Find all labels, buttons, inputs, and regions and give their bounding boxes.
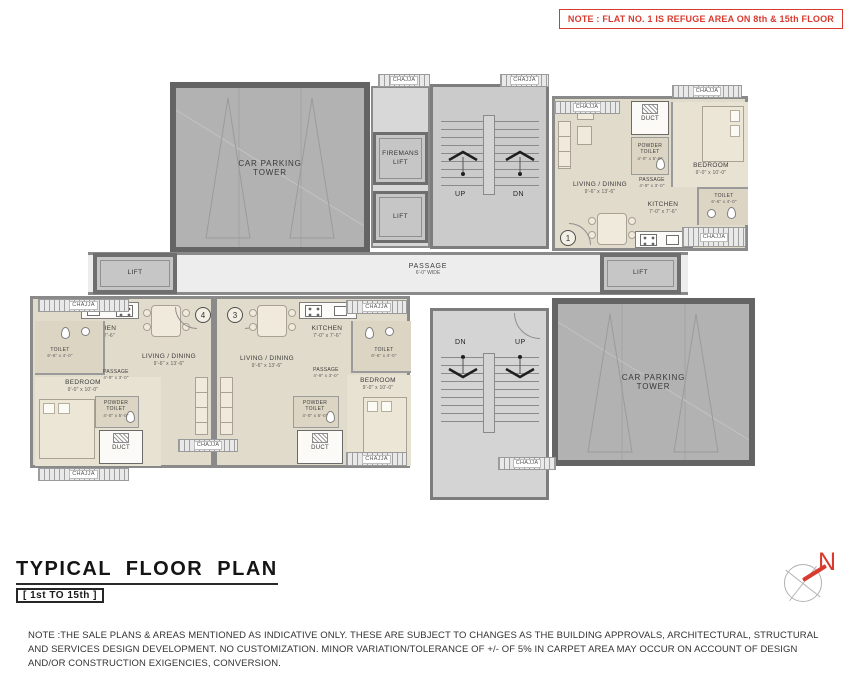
floor-plan-sheet: NOTE : FLAT NO. 1 IS REFUGE AREA ON 8th … — [0, 0, 852, 694]
floor-range: [ 1st TO 15th ] — [16, 588, 104, 603]
toilet-label-flat4: TOILET 6'-6" x 4'-0" — [37, 347, 83, 358]
chajja-strip: CHAJJA — [672, 85, 742, 98]
dn-arrow-icon — [446, 353, 480, 383]
car-parking-line2: TOWER — [637, 382, 671, 391]
flat-number-4: 4 — [195, 307, 211, 323]
dining-chair — [588, 217, 596, 225]
wc-icon — [61, 327, 70, 339]
passage-label-flat1: PASSAGE 4'-9" x 3'-0" — [631, 177, 673, 188]
chajja-strip: CHAJJA — [346, 452, 407, 466]
staircase-top: UP DN — [430, 84, 549, 249]
lift-left-label: LIFT — [128, 269, 143, 277]
dining-table — [257, 305, 287, 337]
pillow — [367, 401, 378, 412]
wc-icon — [727, 207, 736, 219]
toilet-flat1: TOILET 6'-6" x 4'-0" — [697, 187, 748, 225]
dining-chair — [143, 309, 151, 317]
toilet-flat4: TOILET 6'-6" x 4'-0" — [35, 321, 105, 375]
dining-chair — [249, 309, 257, 317]
door-arc — [514, 313, 540, 339]
disclaimer-line1: NOTE :THE SALE PLANS & AREAS MENTIONED A… — [28, 629, 836, 643]
sofa — [220, 377, 233, 435]
dn-arrow-icon — [503, 149, 537, 179]
duct-flat4: DUCT — [99, 430, 143, 464]
stair-divider — [483, 115, 495, 195]
toilet-label-flat3: TOILET 6'-6" x 4'-0" — [361, 347, 407, 358]
flat-number-1: 1 — [560, 230, 576, 246]
chajja-strip: CHAJJA — [38, 299, 129, 312]
chajja-strip: CHAJJA — [500, 74, 549, 87]
toilet-label-flat1: TOILET 6'-6" x 4'-0" — [701, 193, 747, 204]
toilet-flat3: TOILET 6'-6" x 4'-0" — [351, 321, 411, 373]
lift-right: LIFT — [600, 253, 681, 294]
lift-left: LIFT — [93, 253, 177, 294]
bedroom-label-flat3: BEDROOM 9'-0" x 10'-0" — [347, 377, 409, 391]
basin-icon — [385, 327, 394, 336]
main-passage: PASSAGE 6'-0" WIDE — [88, 252, 688, 295]
chajja-strip: CHAJJA — [346, 300, 407, 314]
dn-label: DN — [513, 191, 524, 198]
car-parking-line2: TOWER — [253, 168, 287, 177]
bedroom-label-flat1: BEDROOM 9'-0" x 10'-0" — [679, 162, 743, 176]
duct-hatch-icon — [312, 433, 328, 443]
kitchen-label-flat1: KITCHEN 7'-0" x 7'-6" — [635, 201, 691, 215]
firemans-lift-label-line1: FIREMANS — [382, 150, 419, 158]
car-parking-line1: CAR PARKING — [238, 159, 301, 168]
north-label: N — [818, 548, 836, 577]
chajja-strip: CHAJJA — [178, 439, 238, 452]
chajja-strip: CHAJJA — [38, 468, 129, 481]
bed — [363, 397, 407, 459]
chajja-strip: CHAJJA — [554, 101, 620, 114]
lift-right-label: LIFT — [633, 269, 648, 277]
basin-icon — [81, 327, 90, 336]
duct-hatch-icon — [113, 433, 129, 443]
lift-top-label: LIFT — [393, 213, 408, 221]
pillow — [730, 125, 740, 137]
dining-chair — [249, 323, 257, 331]
dining-chair — [288, 323, 296, 331]
disclaimer-line3: AND/OR CONSTRUCTION EXIGENCIES, CONVERSI… — [28, 657, 836, 671]
pillow — [381, 401, 392, 412]
sofa — [558, 121, 571, 169]
bed — [39, 399, 95, 459]
dn-label: DN — [455, 339, 466, 346]
refuge-note: NOTE : FLAT NO. 1 IS REFUGE AREA ON 8th … — [559, 9, 843, 29]
flat-number-3: 3 — [227, 307, 243, 323]
up-label: UP — [455, 191, 466, 198]
chajja-strip: CHAJJA — [378, 74, 430, 87]
pillow — [43, 403, 55, 414]
basin-icon — [707, 209, 716, 218]
car-parking-tower-label: CAR PARKING TOWER — [176, 88, 364, 247]
disclaimer-line2: AND SERVICES DESIGN DEVELOPMENT. NO CUST… — [28, 643, 836, 657]
car-parking-tower-label: CAR PARKING TOWER — [558, 304, 749, 460]
duct-flat1: DUCT — [631, 101, 669, 135]
powder-toilet-flat1: POWDER TOILET 4'-0" x 5'-0" — [631, 137, 669, 175]
powder-toilet-label-flat4: POWDER TOILET 4'-0" x 5'-0" — [96, 400, 136, 418]
passage-label-flat4: PASSAGE 4'-9" x 3'-0" — [91, 369, 141, 380]
duct-flat3: DUCT — [297, 430, 343, 464]
living-dining-label-flat1: LIVING / DINING 9'-6" x 13'-6" — [563, 181, 637, 195]
chajja-strip: CHAJJA — [682, 227, 746, 247]
staircase-bottom: DN UP — [430, 308, 549, 500]
powder-toilet-label-flat1: POWDER TOILET 4'-0" x 5'-0" — [632, 143, 668, 161]
powder-toilet-label-flat3: POWDER TOILET 4'-0" x 5'-0" — [294, 400, 336, 418]
powder-toilet-flat3: POWDER TOILET 4'-0" x 5'-0" — [293, 396, 339, 428]
side-table — [577, 126, 592, 145]
kitchen-label-flat3: KITCHEN 7'-0" x 7'-6" — [297, 325, 357, 339]
stove-icon — [305, 305, 322, 317]
pillow — [58, 403, 70, 414]
dining-chair — [288, 309, 296, 317]
car-parking-tower-bottom: CAR PARKING TOWER — [552, 298, 755, 466]
bed — [702, 106, 744, 162]
dining-table — [597, 213, 627, 245]
car-parking-tower-top: CAR PARKING TOWER — [170, 82, 370, 253]
sink-icon — [666, 235, 679, 245]
lift-top: LIFT — [373, 191, 428, 243]
chajja-strip: CHAJJA — [498, 457, 556, 470]
stair-divider — [483, 353, 495, 433]
pillow — [730, 110, 740, 122]
title-underline — [16, 583, 278, 585]
stove-icon — [640, 234, 657, 246]
flat-3: 3 KITCHEN 7'-0" x 7'-6" LIVING / DINING … — [214, 296, 410, 468]
firemans-lift-label-line2: LIFT — [393, 159, 408, 167]
passage-label-flat3: PASSAGE 4'-9" x 3'-0" — [301, 367, 351, 378]
up-label: UP — [515, 339, 526, 346]
disclaimer: NOTE :THE SALE PLANS & AREAS MENTIONED A… — [28, 629, 836, 671]
main-passage-label: PASSAGE 6'-0" WIDE — [348, 263, 508, 276]
up-arrow-icon — [446, 149, 480, 179]
duct-hatch-icon — [642, 104, 658, 114]
dining-chair — [143, 323, 151, 331]
living-dining-label-flat3: LIVING / DINING 9'-6" x 13'-6" — [227, 355, 307, 369]
wc-icon — [365, 327, 374, 339]
firemans-lift: FIREMANS LIFT — [373, 132, 428, 185]
powder-toilet-flat4: POWDER TOILET 4'-0" x 5'-0" — [95, 396, 139, 428]
up-arrow-icon — [503, 353, 537, 383]
sofa — [195, 377, 208, 435]
bedroom-flat1: BEDROOM 9'-0" x 10'-0" — [671, 102, 748, 187]
car-parking-line1: CAR PARKING — [622, 373, 685, 382]
dining-chair — [628, 217, 636, 225]
living-dining-label-flat4: LIVING / DINING 9'-6" x 13'-6" — [131, 353, 207, 367]
page-title: TYPICAL FLOOR PLAN — [16, 558, 278, 581]
bedroom-label-flat4: BEDROOM 9'-0" x 10'-0" — [51, 379, 115, 393]
